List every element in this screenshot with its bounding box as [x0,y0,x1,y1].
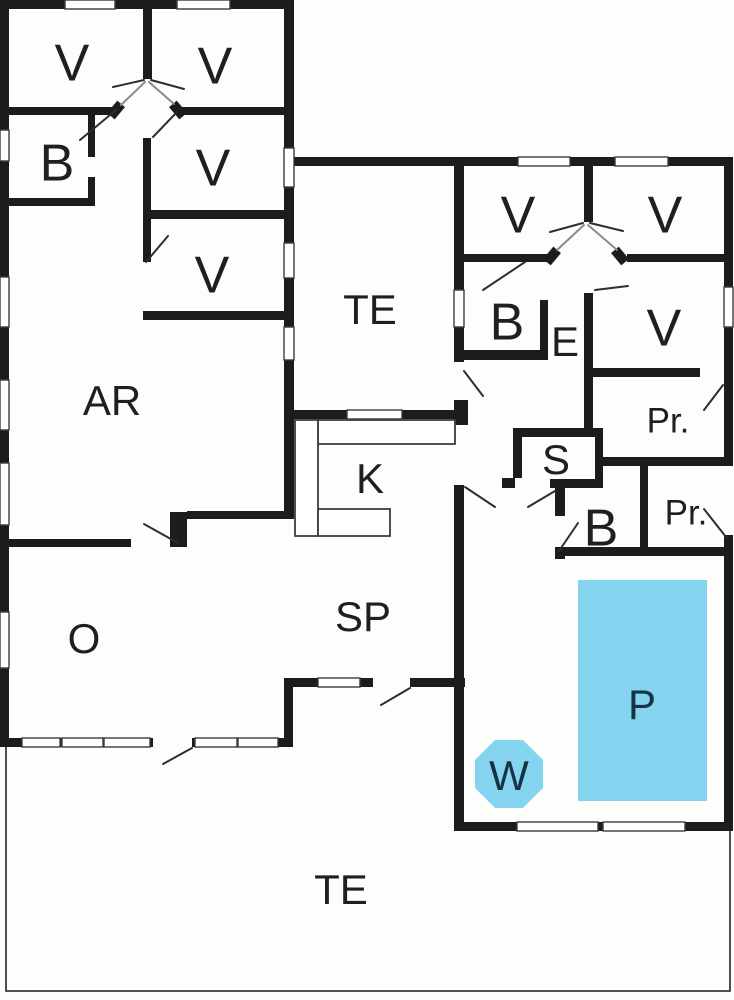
window-sp-south [318,678,360,687]
wall-v3-v4-divider [143,210,284,219]
room-label-b2: B [490,294,525,352]
room-label-v6: V [648,187,683,245]
wall-poolroom-north [555,547,733,556]
window-b2-west [454,290,464,327]
wall-v5-v6-divider [584,166,593,222]
door-sp-poolhall [465,487,495,507]
wall-b1-east-upper [88,115,95,157]
wall-row2-left [463,254,547,262]
door-pr1 [704,385,723,410]
room-label-whirlpool: W [489,752,529,799]
door-entry-e [464,371,483,396]
window-pool-south-2 [603,822,685,831]
wall-b1-south [9,198,95,206]
door-v3 [153,112,177,137]
wall-ar-step-corner [170,512,187,547]
wall-te-atrium-north [284,157,462,166]
room-label-te-atrium: TE [343,286,397,333]
room-label-pr1: Pr. [647,402,690,441]
wall-row1-left [9,107,118,115]
window-ar-west-2 [0,380,9,430]
window-o-south-1 [22,738,60,747]
wall-row1-right [178,107,284,115]
wall-v4-south [143,311,284,320]
window-ar-west-3 [0,463,9,525]
door-o-terrace [163,748,192,764]
wall-v3-west [143,138,151,214]
window-v7-east [724,287,733,327]
wall-right-wing-top [453,157,733,166]
wall-right-wing-west-a [454,157,464,362]
counter-top [318,420,455,444]
room-label-v5: V [501,187,536,245]
window-o-south-5 [238,738,278,747]
wall-right-wing-east-b [724,535,733,831]
window-v2-north [177,0,230,9]
wall-right-wing-west-nub [454,400,468,425]
window-ar-te-2 [284,327,294,360]
room-label-v3: V [196,140,231,198]
window-o-west [0,612,9,668]
jamb-right-hub-east [611,247,629,266]
window-b1-west [0,130,9,161]
counter-west [295,420,318,536]
wall-left-wing-top [0,0,293,9]
window-k-te [347,410,402,419]
door-b2 [483,262,525,290]
floor-plan-page: V V B V V AR TE K O SP TE V V B E V Pr. … [0,0,734,1000]
door-sp-terrace [381,688,410,705]
wall-pr1-south [600,457,733,466]
door-v1 [113,80,144,87]
window-v5-north [518,157,570,166]
room-label-s: S [542,436,570,483]
window-o-south-4 [195,738,237,747]
counter-south [318,509,390,536]
window-o-south-3 [104,738,150,747]
room-label-v1: V [55,35,90,93]
room-label-v2: V [198,38,233,96]
room-label-o: O [68,615,101,662]
window-o-south-2 [62,738,103,747]
floor-plan-svg: V V B V V AR TE K O SP TE V V B E V Pr. … [0,0,734,1000]
wall-b3-pr2-divider [640,457,648,556]
window-ar-te-1 [284,243,294,278]
room-label-v7: V [647,300,682,358]
wall-v1-v2-divider [143,9,152,79]
wall-v7-south [592,368,700,377]
window-v1-north [65,0,115,9]
room-label-pool: P [628,681,656,728]
room-label-ar: AR [83,377,141,424]
room-label-e: E [551,318,579,365]
room-label-sp: SP [335,593,391,640]
wall-v7-west-e-divider [584,293,593,430]
wall-s-west [513,437,522,478]
window-pool-south-1 [517,822,598,831]
room-label-b1: B [40,135,75,193]
door-b3 [559,523,578,551]
door-v7 [595,286,628,290]
wall-ar-south [187,511,294,519]
wall-sp-step [284,678,293,747]
wall-poolhall-west [454,485,464,831]
window-v6-north [615,157,668,166]
wall-v4-west [143,219,151,262]
window-v3-east [284,148,294,187]
door-slab-b1 [121,82,145,105]
window-ar-west-1 [0,277,9,327]
room-label-pr2: Pr. [665,494,708,533]
wall-row2-right [627,254,733,262]
room-label-te-garden: TE [314,866,368,913]
room-label-b3: B [584,500,619,558]
wall-s-jamb [502,478,515,488]
door-s [528,491,555,507]
room-label-k: K [356,455,384,502]
wall-ar-o-divider [9,539,131,547]
wall-b3-west [555,488,565,516]
room-label-v4: V [195,247,230,305]
